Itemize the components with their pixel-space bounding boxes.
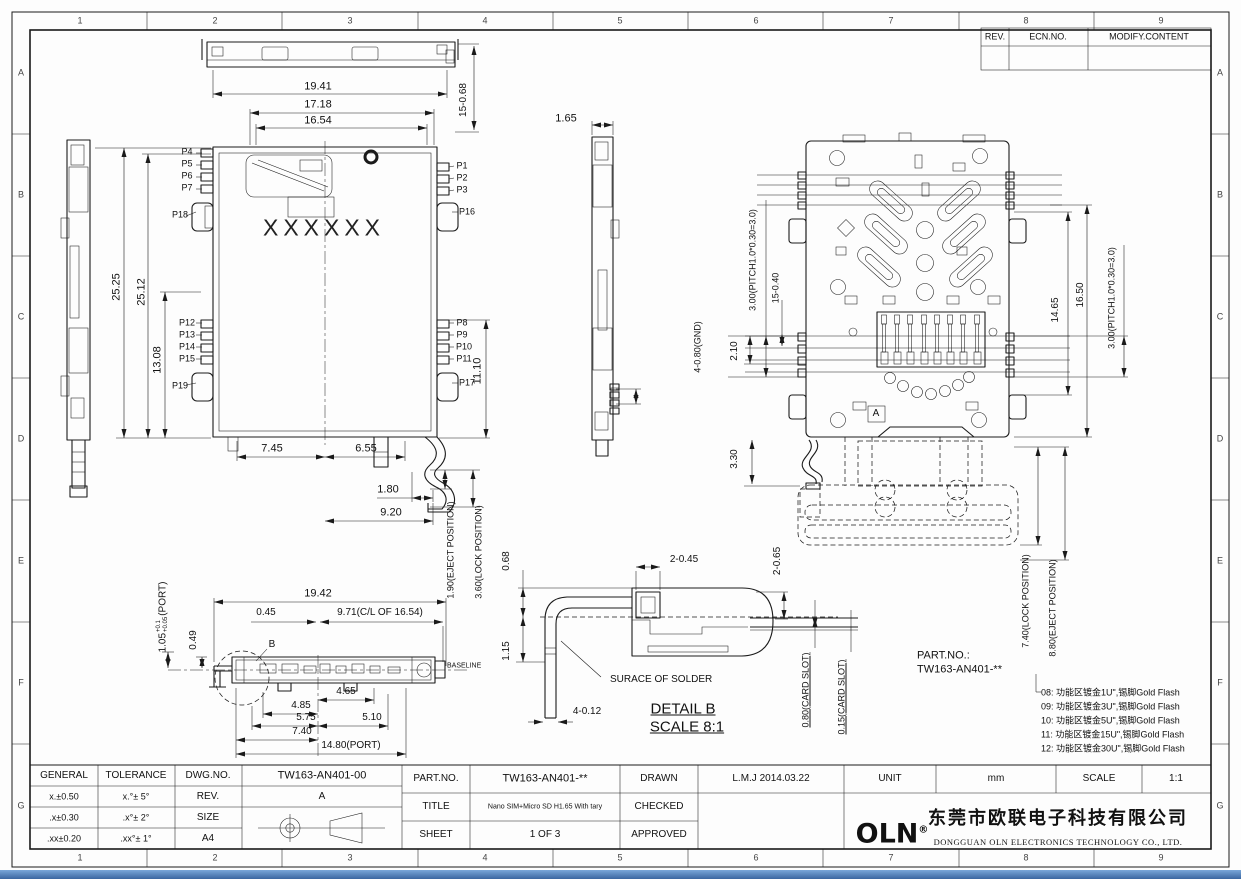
title-block-lines [30,765,1211,849]
pin-leader-lines [186,153,458,385]
revision-table-lines [981,28,1211,70]
main-top-view-linework [192,141,458,512]
drawing-linework [0,0,1241,879]
top-edge-view-linework [202,39,479,132]
engineering-drawing-sheet: 1 2 3 4 5 6 7 8 9 1 2 3 4 5 6 7 8 9 A B … [0,0,1241,879]
tray-hidden-lines [798,437,1018,545]
detail-b-linework [516,567,858,722]
front-view-linework [168,649,470,705]
front-view-dims [162,598,446,758]
middle-side-view-linework [592,121,641,456]
sheet-frame [12,12,1229,867]
bottom-view-linework [745,133,1070,437]
left-side-view-linework [61,140,90,497]
window-bottom-edge [0,870,1241,879]
